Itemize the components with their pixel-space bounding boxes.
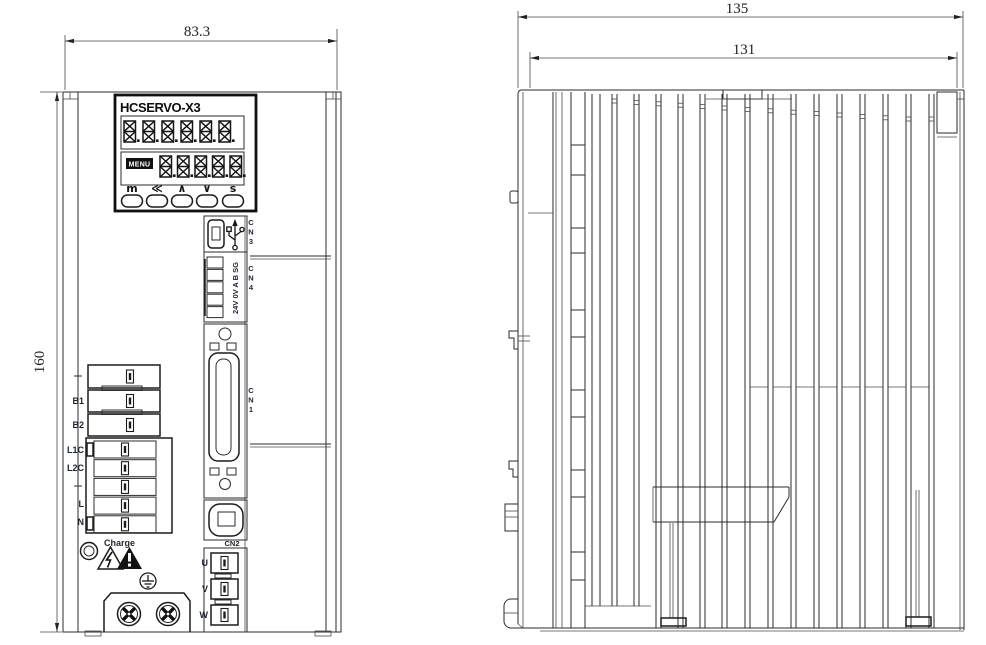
up-button — [172, 195, 193, 207]
ground-symbol-icon — [140, 573, 156, 589]
shift-button — [147, 195, 168, 207]
cn4-label: CN4 — [247, 264, 256, 293]
terminal-b1-label: B1 — [72, 396, 84, 406]
set-button — [223, 195, 244, 207]
terminal-u-label: U — [202, 558, 209, 568]
set-button-label: s — [230, 182, 237, 195]
cn2-connector — [209, 504, 243, 536]
dim-front-width: 83.3 — [65, 24, 337, 90]
display-panel: HCSERVO-X3 MENU m ≪ ∧ ∨ s — [115, 95, 256, 211]
dim-front-height: 160 — [32, 92, 62, 632]
cn2-label: CN2 — [224, 539, 239, 548]
captive-screw-right — [906, 490, 931, 626]
terminal-n-label: N — [78, 517, 85, 527]
side-view: 135 131 — [504, 1, 964, 631]
usb-icon — [227, 219, 244, 250]
power-terminal-block: B1 B2 L1C L2C L N — [67, 365, 172, 533]
front-width-value: 83.3 — [184, 24, 210, 40]
warning-exclamation-icon — [117, 547, 142, 569]
top-clip — [706, 90, 792, 99]
seven-segment-row1 — [124, 121, 235, 142]
vent-slot-column — [571, 92, 585, 628]
cn1-label: CN1 — [247, 386, 256, 415]
motor-terminals — [211, 553, 238, 625]
ground-screw-right — [157, 603, 180, 626]
seven-segment-row2 — [160, 156, 246, 177]
technical-drawing-canvas: 83.3 160 HCSERVO-X3 — [0, 0, 986, 645]
down-button — [197, 195, 218, 207]
down-button-label: ∨ — [203, 182, 212, 195]
comm-pin-labels: 24V 0V A B SG — [231, 262, 240, 314]
connector-column: 24V 0V A B SG CN2 — [200, 216, 256, 632]
usb-port — [208, 220, 224, 248]
side-front-protrusions — [504, 191, 530, 628]
side-depth-overall-value: 135 — [726, 1, 749, 17]
charge-label: Charge — [104, 538, 135, 548]
front-view: 83.3 160 HCSERVO-X3 — [32, 24, 341, 636]
terminal-v-label: V — [202, 584, 208, 594]
heatsink-fins — [585, 94, 934, 628]
terminal-w-label: W — [200, 610, 209, 620]
cn3-label: CN3 — [247, 218, 256, 247]
terminal-l2c-label: L2C — [67, 463, 85, 473]
comm-terminal-pins — [205, 257, 223, 318]
servo-drive-dimension-drawing: 83.3 160 HCSERVO-X3 — [0, 0, 986, 645]
ground-screw-left — [118, 603, 141, 626]
terminal-cover-band — [653, 487, 789, 522]
shift-button-label: ≪ — [151, 182, 163, 195]
captive-screw-left — [661, 523, 686, 626]
dim-side-depth-body: 131 — [530, 42, 957, 88]
cn1-connector — [209, 328, 239, 490]
menu-badge-label: MENU — [129, 161, 151, 168]
mode-button — [122, 195, 143, 207]
terminal-l1c-label: L1C — [67, 445, 85, 455]
up-button-label: ∧ — [178, 182, 187, 195]
mode-button-label: m — [126, 182, 137, 195]
front-height-value: 160 — [32, 351, 48, 374]
keypad: m ≪ ∧ ∨ s — [122, 182, 244, 207]
model-label: HCSERVO-X3 — [120, 100, 200, 115]
side-depth-body-value: 131 — [733, 42, 756, 58]
ground-screw-terminals — [104, 593, 190, 632]
terminal-l-label: L — [79, 499, 85, 509]
terminal-b2-label: B2 — [72, 420, 84, 430]
